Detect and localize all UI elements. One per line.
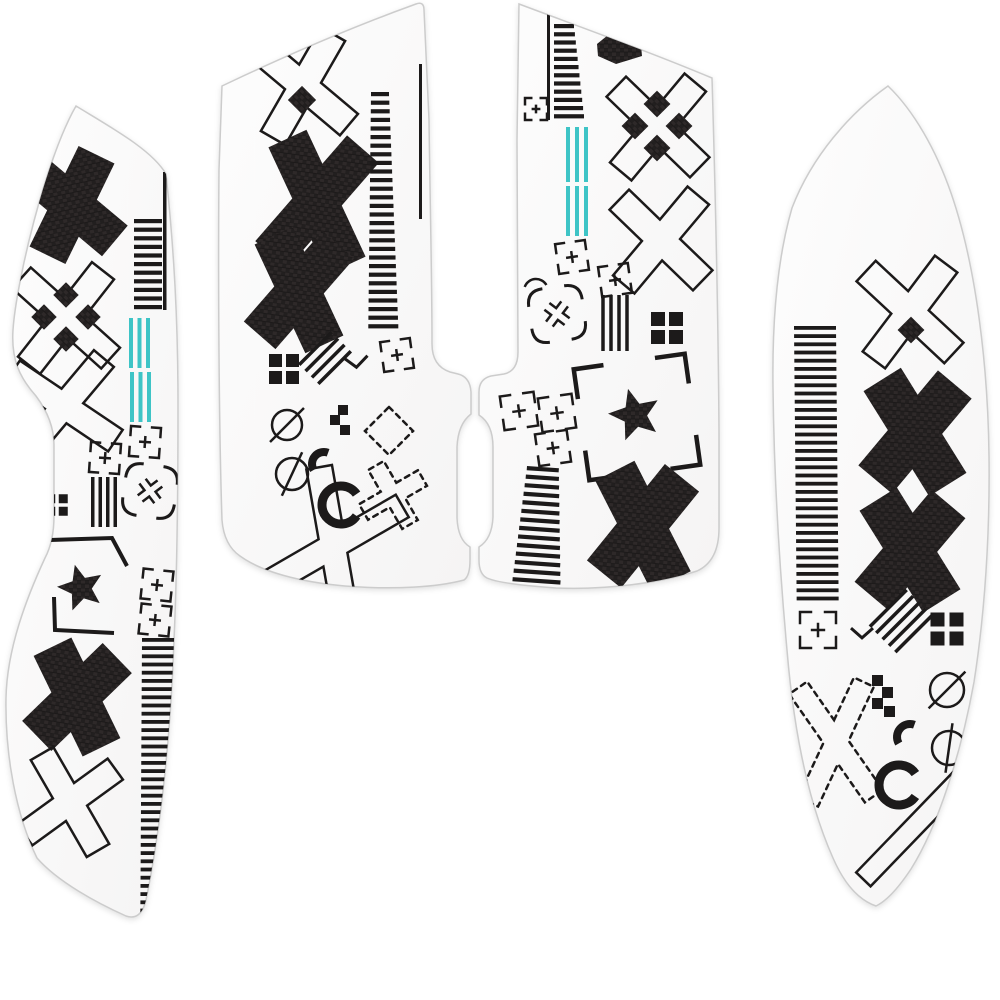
thinline-decal — [419, 64, 422, 219]
left-main-button-outline — [219, 3, 471, 588]
grip-tape-piece-right-side-grip — [773, 86, 989, 906]
grip-tape-piece-left-side-grip — [3, 106, 180, 929]
grip-tape-piece-right-main-button — [479, 4, 719, 595]
grip-tape-product-photo — [0, 0, 1000, 1000]
lines3-decal — [566, 186, 588, 236]
thinline-decal — [163, 172, 167, 310]
grip-tape-piece-left-main-button — [219, 3, 471, 636]
lines3-decal — [130, 372, 151, 422]
lines3-decal — [566, 127, 588, 182]
grip-tape-artwork — [0, 0, 1000, 1000]
lines3-decal — [129, 318, 150, 368]
